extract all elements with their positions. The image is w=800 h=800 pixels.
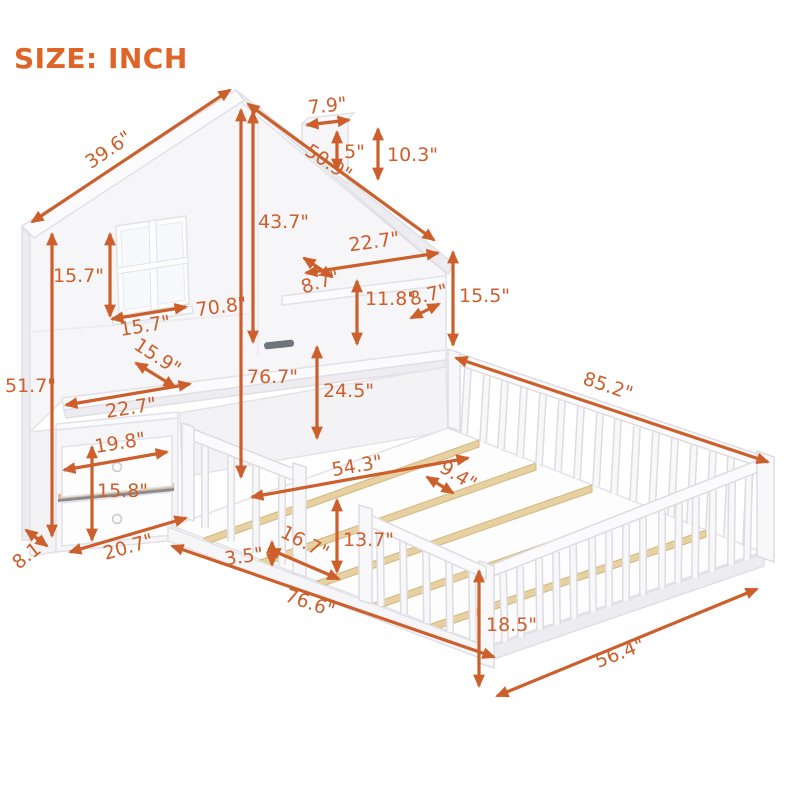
dim-label-drawer-height: 15.8" <box>97 480 148 502</box>
dim-label-peak-floor: 76.7" <box>247 366 298 388</box>
dim-label-under-desk: 24.5" <box>323 380 374 402</box>
product-dimension-diagram: 39.6" 50.9" 7.9" 5" 10.3" 43.7" 76.7" 15… <box>0 0 800 800</box>
dim-label-right-section: 15.5" <box>459 285 510 307</box>
dim-label-chimney-width: 7.9" <box>307 93 348 119</box>
dim-label-chimney-front: 5" <box>344 141 365 163</box>
dim-label-window-height: 15.7" <box>53 265 104 287</box>
drawer-knob-top <box>113 463 122 472</box>
dim-label-peak-shelf: 43.7" <box>258 211 309 233</box>
dim-label-chimney-back: 10.3" <box>387 144 438 166</box>
drawer-knob-bottom <box>113 515 122 524</box>
side-rail-left-post <box>182 423 194 521</box>
house-bed-diagram: 39.6" 50.9" 7.9" 5" 10.3" 43.7" 76.7" 15… <box>0 0 800 800</box>
dim-label-bed-width: 56.4" <box>592 634 648 673</box>
corner-post-right <box>757 451 774 562</box>
dim-label-rail-height: 13.7" <box>343 529 394 551</box>
dim-label-footboard-height: 18.5" <box>486 614 537 636</box>
size-unit-title: SIZE: INCH <box>14 42 188 75</box>
gap-post <box>359 505 372 604</box>
back-rail-left-post <box>448 349 460 431</box>
dim-label-left-wall: 51.7" <box>5 375 56 397</box>
